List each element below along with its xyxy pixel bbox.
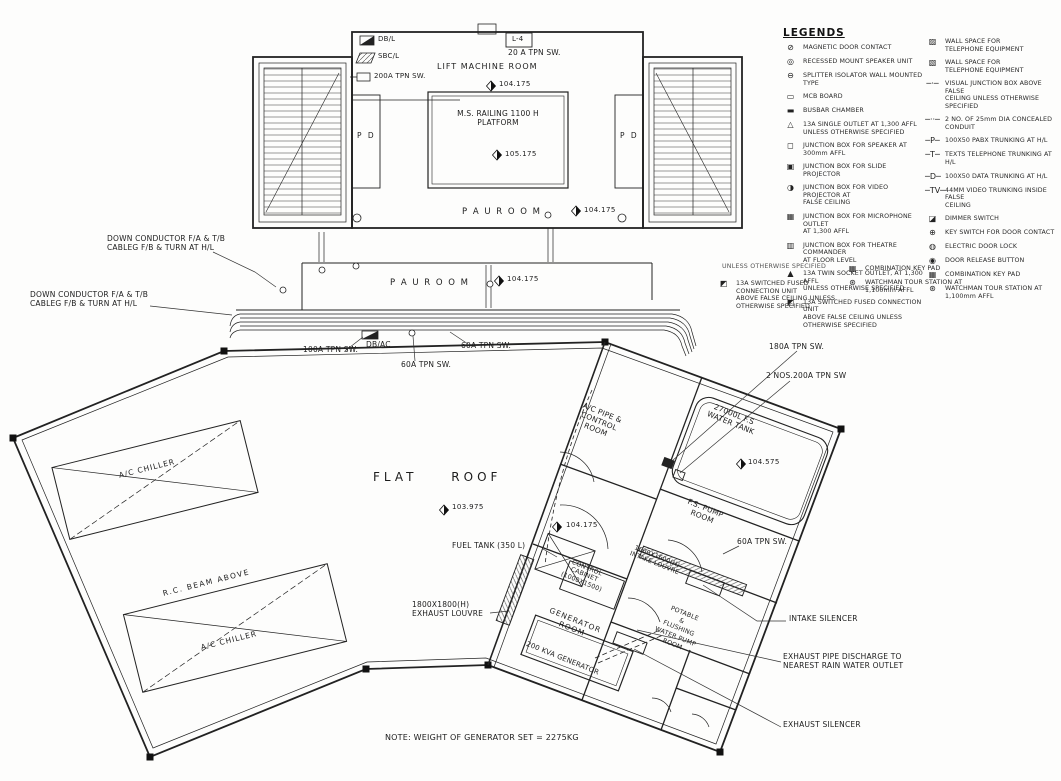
- legend-item-splitter-isolator: ⊖SPLITTER ISOLATOR WALL MOUNTED TYPE: [783, 72, 925, 87]
- legend-item-label: 13A SINGLE OUTLET AT 1,300 AFFL UNLESS O…: [803, 121, 917, 136]
- legend-item-jb-slide: ▣JUNCTION BOX FOR SLIDE PROJECTOR: [783, 163, 925, 178]
- legend-item-label: RECESSED MOUNT SPEAKER UNIT: [803, 58, 912, 66]
- ac-chiller-2: [123, 564, 346, 692]
- watchman-tour-station-icon: ⊛: [845, 279, 860, 287]
- legend-item-watchman-tour-station-2: ⊛WATCHMAN TOUR STATION AT 1,100mm AFFL: [845, 279, 965, 294]
- legend-item-data-trunking: ─D─100X50 DATA TRUNKING AT H/L: [925, 173, 1061, 181]
- legend-item-label: MCB BOARD: [803, 93, 843, 101]
- telephone-trunking-icon: ─T─: [925, 151, 940, 159]
- mini-legend-symbols: [350, 36, 375, 81]
- ac-chiller-1: [52, 421, 258, 540]
- twin-socket-icon: ▲: [783, 270, 798, 278]
- recessed-speaker-icon: ◎: [783, 58, 798, 66]
- legend-item-label: TEXTS TELEPHONE TRUNKING AT H/L: [945, 151, 1061, 166]
- ac-chillers: [52, 421, 347, 693]
- data-trunking-icon: ─D─: [925, 173, 940, 181]
- label-intake-silencer: INTAKE SILENCER: [789, 615, 858, 624]
- label-20a-tpn-sw: 20 A TPN SW.: [508, 49, 561, 58]
- combination-key-pad-icon: ▦: [845, 265, 860, 273]
- legend-item-label: DIMMER SWITCH: [945, 215, 999, 223]
- legend-item-label: JUNCTION BOX FOR THEATRE COMMANDER AT FL…: [803, 242, 925, 265]
- legend-item-switched-fused-unit-2: ◩13A SWITCHED FUSED CONNECTION UNIT ABOV…: [716, 280, 846, 310]
- busbar-chamber-icon: ▬: [783, 107, 798, 115]
- legend-item-label: WALL SPACE FOR TELEPHONE EQUIPMENT: [945, 59, 1024, 74]
- legend-item-label: SPLITTER ISOLATOR WALL MOUNTED TYPE: [803, 72, 925, 87]
- legend-item-jb-video: ◑JUNCTION BOX FOR VIDEO PROJECTOR AT FAL…: [783, 184, 925, 207]
- legend-item-jb-microphone: ▦JUNCTION BOX FOR MICROPHONE OUTLET AT 1…: [783, 213, 925, 236]
- legend-item-electric-door-lock: ◍ELECTRIC DOOR LOCK: [925, 243, 1061, 251]
- legend-fragment: UNLESS OTHERWISE SPECIFIED: [722, 263, 826, 270]
- level-platform: 105.175: [505, 150, 537, 158]
- label-db-ac: DB/AC: [366, 341, 391, 350]
- level-pau-lower: 104.175: [507, 275, 539, 283]
- label-lift-machine-room: LIFT MACHINE ROOM: [437, 62, 538, 71]
- label-60a-tpn-sw-pump: 60A TPN SW.: [737, 538, 787, 547]
- label-exhaust-silencer: EXHAUST SILENCER: [783, 721, 861, 730]
- label-l4: L-4: [512, 35, 523, 43]
- stairwell-right: [643, 57, 742, 228]
- note-down-conductor-1: DOWN CONDUCTOR F/A & T/B CABLEG F/B & TU…: [107, 235, 225, 253]
- label-platform: M.S. RAILING 1100 H PLATFORM: [443, 110, 553, 128]
- legend-item-mcb-board: ▭MCB BOARD: [783, 93, 925, 101]
- label-2nos-200a-tpn-sw: 2 NOS.200A TPN SW: [766, 372, 846, 381]
- electric-door-lock-icon: ◍: [925, 243, 940, 251]
- legend-item-label: 13A SWITCHED FUSED CONNECTION UNIT ABOVE…: [736, 280, 846, 310]
- label-pau-room-upper: P A U R O O M: [462, 207, 542, 217]
- legend-item-jb-theatre: ▥JUNCTION BOX FOR THEATRE COMMANDER AT F…: [783, 242, 925, 265]
- key-switch-icon: ⊕: [925, 229, 940, 237]
- legend-item-label: JUNCTION BOX FOR SLIDE PROJECTOR: [803, 163, 925, 178]
- legend-item-label: COMBINATION KEY PAD: [865, 265, 940, 273]
- legend-item-combination-key-pad-2: ▦COMBINATION KEY PAD: [845, 265, 965, 273]
- dimmer-switch-icon: ◪: [925, 215, 940, 223]
- label-flat-roof: FLAT ROOF: [373, 470, 501, 484]
- flat-roof-outline: [10, 339, 845, 761]
- legend-item-telephone-trunking: ─T─TEXTS TELEPHONE TRUNKING AT H/L: [925, 151, 1061, 166]
- note-generator-weight: NOTE: WEIGHT OF GENERATOR SET = 2275KG: [385, 733, 579, 742]
- label-pd-right: P D: [620, 132, 639, 141]
- legend-item-visual-junction-box: ─·─VISUAL JUNCTION BOX ABOVE FALSE CEILI…: [925, 80, 1061, 110]
- video-trunking-icon: ─TV─: [925, 187, 940, 195]
- level-pau-upper: 104.175: [584, 206, 616, 214]
- level-lift: 104.175: [499, 80, 531, 88]
- legend-item-dimmer-switch: ◪DIMMER SWITCH: [925, 215, 1061, 223]
- legend-item-concealed-conduit: ─··─2 NO. OF 25mm DIA CONCEALED CONDUIT: [925, 116, 1061, 131]
- legend-item-label: ELECTRIC DOOR LOCK: [945, 243, 1017, 251]
- level-flat-roof: 103.975: [452, 503, 484, 511]
- legend-item-magnetic-door-contact: ⊘MAGNETIC DOOR CONTACT: [783, 44, 925, 52]
- legend-item-label: WALL SPACE FOR TELEPHONE EQUIPMENT: [945, 38, 1024, 53]
- legends-extra-right: ▦COMBINATION KEY PAD ⊛WATCHMAN TOUR STAT…: [845, 265, 965, 294]
- legend-item-door-release-button: ◉DOOR RELEASE BUTTON: [925, 257, 1061, 265]
- magnetic-door-contact-icon: ⊘: [783, 44, 798, 52]
- label-180a-tpn-sw: 180A TPN SW.: [769, 343, 824, 352]
- label-pau-room-lower: P A U R O O M: [390, 278, 470, 288]
- splitter-isolator-icon: ⊖: [783, 72, 798, 80]
- label-pd-left: P D: [357, 132, 376, 141]
- legends-extra-left: ◩13A SWITCHED FUSED CONNECTION UNIT ABOV…: [716, 280, 846, 310]
- legend-item-single-outlet: △13A SINGLE OUTLET AT 1,300 AFFL UNLESS …: [783, 121, 925, 136]
- legend-item-label: 100X50 DATA TRUNKING AT H/L: [945, 173, 1047, 181]
- door-release-button-icon: ◉: [925, 257, 940, 265]
- legend-item-label: KEY SWITCH FOR DOOR CONTACT: [945, 229, 1054, 237]
- legend-item-label: BUSBAR CHAMBER: [803, 107, 864, 115]
- label-60a-tpn-sw-below: 60A TPN SW.: [401, 361, 451, 370]
- jb-theatre-icon: ▥: [783, 242, 798, 250]
- label-100a-tpn-sw: 100A TPN SW.: [303, 346, 358, 355]
- roof-plan-canvas: DB/L SBC/L 200A TPN SW. L-4 20 A TPN SW.…: [0, 0, 1061, 781]
- legends-column-2: ▨WALL SPACE FOR TELEPHONE EQUIPMENT ▧WAL…: [925, 38, 1061, 300]
- label-exhaust-pipe: EXHAUST PIPE DISCHARGE TO NEAREST RAIN W…: [783, 653, 903, 671]
- legend-item-video-trunking: ─TV─44MM VIDEO TRUNKING INSIDE FALSE CEI…: [925, 187, 1061, 210]
- mini-legend-db: DB/L: [378, 35, 395, 43]
- visual-junction-box-icon: ─·─: [925, 80, 940, 88]
- jb-video-icon: ◑: [783, 184, 798, 192]
- label-60a-tpn-sw-right: 60A TPN SW.: [461, 342, 511, 351]
- jb-slide-icon: ▣: [783, 163, 798, 171]
- wall-space-telephone-icon: ▧: [925, 59, 940, 67]
- legend-item-label: JUNCTION BOX FOR SPEAKER AT 300mm AFFL: [803, 142, 925, 157]
- note-down-conductor-2: DOWN CONDUCTOR F/A & T/B CABLEG F/B & TU…: [30, 291, 148, 309]
- concealed-conduit-icon: ─··─: [925, 116, 940, 124]
- jb-speaker-icon: ◻: [783, 142, 798, 150]
- plant-block: [488, 342, 832, 730]
- switched-fused-unit-icon: ◩: [716, 280, 731, 288]
- legend-item-label: VISUAL JUNCTION BOX ABOVE FALSE CEILING …: [945, 80, 1061, 110]
- label-fuel-tank: FUEL TANK (350 L): [452, 542, 525, 551]
- label-exhaust-louvre: 1800X1800(H) EXHAUST LOUVRE: [412, 601, 483, 619]
- legend-item-label: 2 NO. OF 25mm DIA CONCEALED CONDUIT: [945, 116, 1061, 131]
- legend-item-label: MAGNETIC DOOR CONTACT: [803, 44, 891, 52]
- legend-item-label: 100X50 PABX TRUNKING AT H/L: [945, 137, 1048, 145]
- legend-item-label: WATCHMAN TOUR STATION AT 1,100mm AFFL: [865, 279, 962, 294]
- exhaust-louvre: [496, 555, 534, 625]
- legend-item-pabx-trunking: ─P─100X50 PABX TRUNKING AT H/L: [925, 137, 1061, 145]
- legends-title: LEGENDS: [783, 27, 845, 39]
- stairwell-left: [253, 57, 352, 228]
- level-water-tank: 104.575: [748, 458, 780, 466]
- single-outlet-icon: △: [783, 121, 798, 129]
- legend-item-label: JUNCTION BOX FOR MICROPHONE OUTLET AT 1,…: [803, 213, 925, 236]
- pabx-trunking-icon: ─P─: [925, 137, 940, 145]
- level-generator: 104.175: [566, 521, 598, 529]
- legend-item-busbar-chamber: ▬BUSBAR CHAMBER: [783, 107, 925, 115]
- mcb-board-icon: ▭: [783, 93, 798, 101]
- legend-item-label: JUNCTION BOX FOR VIDEO PROJECTOR AT FALS…: [803, 184, 925, 207]
- mini-legend-sbc: SBC/L: [378, 52, 399, 60]
- legend-item-wall-space-telephone-1: ▨WALL SPACE FOR TELEPHONE EQUIPMENT: [925, 38, 1061, 53]
- legend-item-label: DOOR RELEASE BUTTON: [945, 257, 1024, 265]
- legend-item-recessed-speaker: ◎RECESSED MOUNT SPEAKER UNIT: [783, 58, 925, 66]
- wall-space-telephone-icon: ▨: [925, 38, 940, 46]
- legend-item-label: 44MM VIDEO TRUNKING INSIDE FALSE CEILING: [945, 187, 1061, 210]
- legend-item-key-switch: ⊕KEY SWITCH FOR DOOR CONTACT: [925, 229, 1061, 237]
- jb-microphone-icon: ▦: [783, 213, 798, 221]
- legend-item-jb-speaker: ◻JUNCTION BOX FOR SPEAKER AT 300mm AFFL: [783, 142, 925, 157]
- legend-item-wall-space-telephone-2: ▧WALL SPACE FOR TELEPHONE EQUIPMENT: [925, 59, 1061, 74]
- mini-legend-sw: 200A TPN SW.: [374, 72, 426, 80]
